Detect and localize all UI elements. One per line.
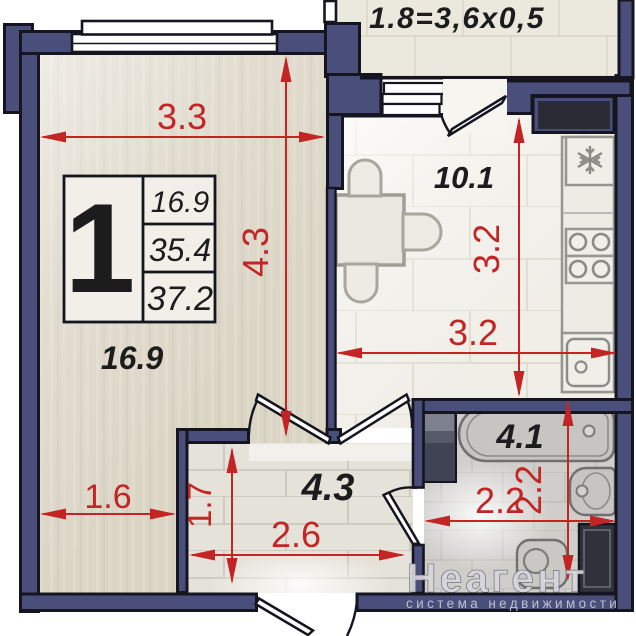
svg-text:4.3: 4.3	[235, 227, 276, 277]
svg-text:1.6: 1.6	[84, 478, 131, 516]
svg-text:37.2: 37.2	[147, 280, 213, 318]
svg-text:1.8=3,6x0,5: 1.8=3,6x0,5	[369, 2, 545, 35]
svg-text:16.9: 16.9	[101, 340, 163, 376]
svg-text:система недвижимости: система недвижимости	[406, 596, 620, 611]
svg-text:10.1: 10.1	[434, 160, 494, 195]
svg-text:3.2: 3.2	[448, 312, 498, 353]
svg-text:2.6: 2.6	[271, 514, 321, 555]
svg-text:2.2: 2.2	[508, 465, 549, 515]
svg-text:4.3: 4.3	[301, 467, 355, 509]
svg-text:3.2: 3.2	[466, 224, 507, 274]
svg-text:4.1: 4.1	[495, 418, 543, 456]
svg-text:1: 1	[65, 177, 136, 319]
svg-text:3.3: 3.3	[157, 96, 207, 137]
svg-text:16.9: 16.9	[151, 186, 210, 219]
svg-text:1.7: 1.7	[181, 482, 218, 528]
svg-text:35.4: 35.4	[149, 232, 211, 268]
svg-text:Неагент: Неагент	[407, 555, 588, 601]
